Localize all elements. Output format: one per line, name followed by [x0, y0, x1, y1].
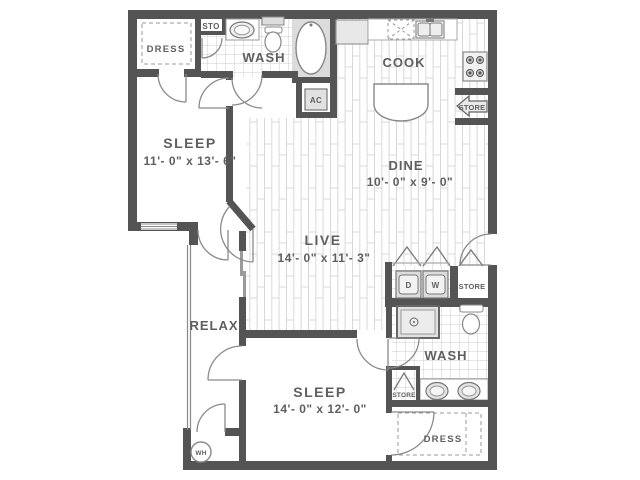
room-label-sleep-1: SLEEP [163, 135, 216, 151]
wall [386, 366, 392, 407]
bathtub-faucet [310, 24, 313, 27]
appliance-label-washer: W [432, 281, 440, 290]
sink-upper-basin [235, 25, 250, 35]
door-arc [232, 78, 262, 108]
wall [189, 222, 198, 245]
wall [488, 265, 497, 470]
room-label-wash-upper: WASH [243, 50, 286, 65]
door-arc [158, 74, 186, 102]
toilet-upper-bowl [265, 32, 281, 52]
wall [392, 400, 488, 407]
door-arc [232, 75, 262, 105]
room-label-dress-lower: DRESS [424, 434, 463, 445]
wall [128, 10, 137, 231]
sliding-door [239, 251, 246, 297]
kitchen-sink-basin-right [430, 23, 442, 36]
wall [416, 370, 420, 400]
closet-label-bath-store: STORE [392, 392, 416, 399]
room-label-cook: COOK [383, 55, 426, 70]
room-dims-live: 14'- 0" x 11'- 3" [278, 251, 371, 265]
bath-shelf [262, 17, 284, 25]
room-dims-sleep-2: 14'- 0" x 12'- 0" [273, 402, 367, 416]
vanity-sink-left-basin [430, 386, 444, 396]
wall [450, 266, 458, 298]
bathtub [296, 22, 326, 74]
closet-label-hall-store: STORE [459, 282, 486, 291]
floor-plan-drawing: DRESS STO WASH COOK AC STORE DINE 10'- 0… [0, 0, 640, 480]
door-arc [357, 339, 388, 370]
room-label-live: LIVE [304, 232, 341, 248]
label-water-heater: WH [195, 450, 206, 457]
stove [463, 52, 487, 81]
room-label-relax: RELAX [189, 318, 238, 333]
kitchen-sink-basin-left [418, 23, 430, 36]
closet-label-ac: AC [310, 96, 322, 105]
wall [222, 19, 226, 33]
door-arc [198, 230, 228, 260]
room-label-dine: DINE [388, 158, 423, 173]
balcony-railing [188, 245, 191, 430]
closet-label-pantry-store: STORE [459, 103, 486, 112]
wall [195, 19, 201, 77]
door-arc [199, 78, 229, 108]
wall [386, 455, 392, 461]
vanity-sink-right-basin [462, 386, 476, 396]
wall [239, 380, 246, 461]
wall [455, 88, 488, 95]
room-label-dress-upper: DRESS [147, 44, 186, 55]
refrigerator [336, 20, 368, 44]
door-arc [208, 346, 242, 380]
floor-plan: DRESS STO WASH COOK AC STORE DINE 10'- 0… [0, 0, 640, 480]
wall [239, 296, 246, 346]
wall [137, 69, 159, 77]
wall [239, 330, 357, 338]
room-label-sleep-2: SLEEP [293, 384, 346, 400]
wall [199, 31, 226, 35]
wall [239, 231, 246, 252]
appliance-label-dryer: D [405, 281, 411, 290]
room-dims-dine: 10'- 0" x 9'- 0" [367, 175, 453, 189]
wall [262, 71, 298, 78]
wall [225, 428, 246, 436]
wall [183, 461, 497, 470]
room-label-wash-lower: WASH [425, 348, 468, 363]
wall [296, 112, 337, 118]
closet-label-sto: STO [202, 22, 219, 31]
wall [455, 118, 488, 125]
wall [128, 10, 497, 19]
room-dims-sleep-1: 11'- 0" x 13'- 6" [144, 154, 237, 168]
toilet-lower-tank [460, 305, 483, 312]
kitchen-island [374, 84, 428, 121]
window [141, 223, 177, 230]
shower-drain-dot [413, 321, 415, 323]
door-arc [197, 404, 225, 432]
toilet-lower-bowl [463, 314, 480, 334]
wall [488, 10, 497, 234]
kitchen-faucet [426, 19, 434, 22]
wall [183, 428, 191, 470]
wall [386, 307, 392, 338]
